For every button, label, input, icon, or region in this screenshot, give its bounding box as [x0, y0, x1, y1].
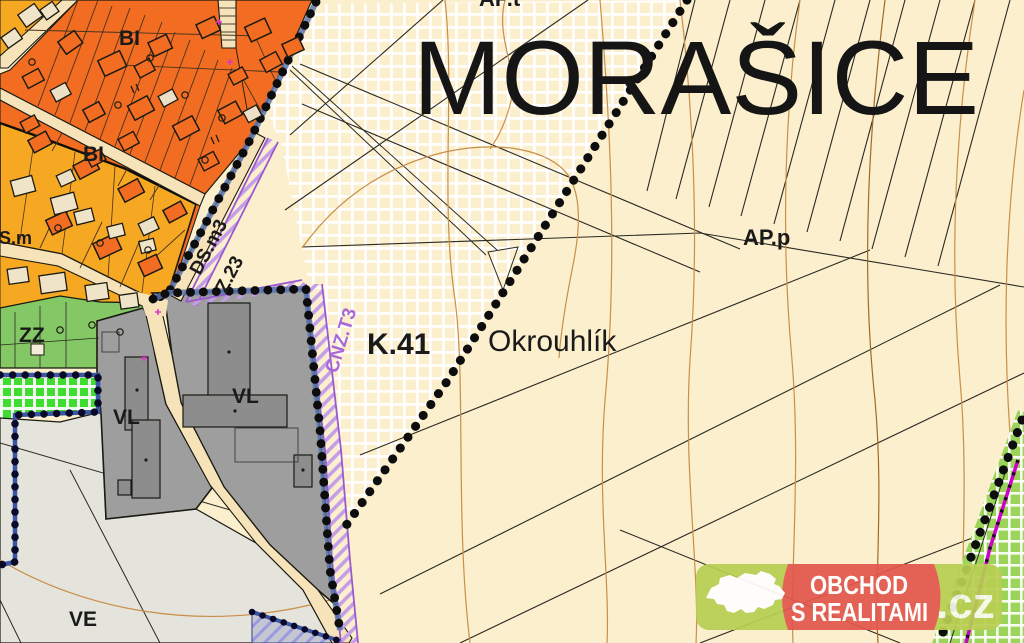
svg-text:ZZ: ZZ: [19, 324, 45, 347]
svg-text:.cz: .cz: [936, 579, 995, 628]
svg-text:OBCHOD: OBCHOD: [810, 570, 908, 600]
svg-text:Okrouhlík: Okrouhlík: [488, 325, 617, 358]
svg-text:VE: VE: [69, 608, 97, 631]
svg-text:AP.p: AP.p: [743, 225, 790, 250]
svg-text:DS.m: DS.m: [0, 228, 32, 248]
svg-text:K.41: K.41: [367, 328, 430, 361]
svg-text:VL: VL: [113, 406, 140, 429]
svg-text:BI: BI: [83, 143, 104, 166]
svg-text:BI: BI: [119, 27, 140, 50]
svg-text:S REALITAMI: S REALITAMI: [791, 597, 928, 627]
svg-text:VL: VL: [232, 385, 259, 408]
svg-text:MORAŠICE: MORAŠICE: [413, 20, 979, 137]
svg-text:AP.t: AP.t: [479, 0, 521, 11]
